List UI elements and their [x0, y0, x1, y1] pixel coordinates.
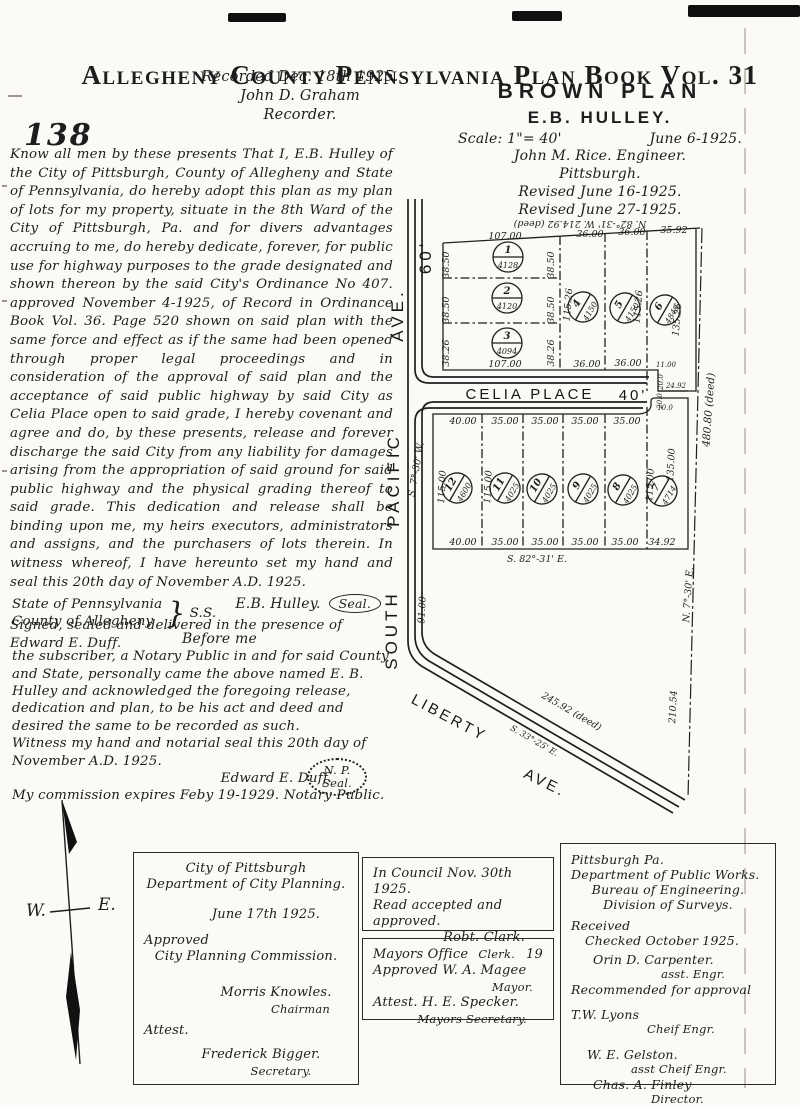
plan-owner: E.B. HULLEY.	[450, 108, 750, 128]
pw-line2: Department of Public Works.	[571, 867, 765, 882]
sixty-foot-label: 60'	[416, 240, 435, 274]
dim-lot1-left: 38.50	[441, 251, 452, 278]
pw-carpenter-title: asst. Engr.	[571, 967, 725, 982]
compass-rose: W. E.	[14, 792, 134, 1082]
notary-body: the subscriber, a Notary Public in and f…	[12, 648, 392, 735]
scan-smudge	[228, 13, 286, 22]
dim-lot11-rear: 35.00	[491, 537, 518, 548]
dim-lot9-rear: 35.00	[571, 537, 598, 548]
dim-lot6-front: 35.92	[660, 225, 687, 236]
lot-10-marker: 10 4025	[522, 469, 563, 510]
dim-lot2-left: 38.50	[441, 296, 452, 323]
plan-name: BROWN PLAN	[450, 80, 750, 104]
scan-smudge	[688, 5, 800, 17]
pw-line4: Division of Surveys.	[571, 897, 765, 912]
lot-9-marker: 9 4025	[563, 469, 604, 510]
bearing-liberty: S. 33°-25' E.	[508, 724, 559, 759]
pw-received: Received	[571, 918, 765, 933]
pacific-label: PACIFIC	[385, 433, 403, 527]
mayor-office-label: Mayors Office	[373, 947, 468, 963]
plan-city: Pittsburgh.	[450, 165, 750, 183]
notary-seal: N. P. Seal.	[307, 758, 367, 796]
notary-signature: Edward E. Duff.	[12, 770, 332, 787]
celia-south-curb1	[422, 402, 685, 800]
lot-area: 4094	[496, 347, 517, 356]
recorder-title: Recorder.	[185, 106, 415, 125]
mayor-secretary-title: Mayors Secretary.	[373, 1011, 527, 1027]
planning-commission: City Planning Commission.	[144, 949, 348, 965]
dim-deed-right: 480.80 (deed)	[700, 372, 717, 448]
lot-area: 4120	[496, 302, 517, 311]
dim-liberty-length: 245.92 (deed)	[539, 690, 604, 734]
pw-lyons: T.W. Lyons	[571, 1007, 765, 1022]
dim-jog-10: 10.0	[657, 404, 673, 412]
mayors-office-box: Mayors Office 19 Approved W. A. Magee Ma…	[362, 938, 554, 1020]
recorder-name: John D. Graham	[185, 87, 415, 106]
south-label: SOUTH	[385, 590, 401, 670]
dim-lot5-front: 36.00	[618, 227, 645, 238]
lot-number: 1	[505, 245, 512, 256]
planning-secretary-title: Secretary.	[214, 1063, 348, 1079]
planning-secretary-name: Frederick Bigger.	[174, 1047, 348, 1063]
pw-line3: Bureau of Engineering.	[571, 882, 765, 897]
plan-scale-line: Scale: 1"= 40' June 6-1925.	[450, 131, 750, 147]
dim-lot8-rear: 35.00	[611, 537, 638, 548]
dim-lot2-right: 38.50	[546, 296, 557, 323]
east-deed-line	[688, 228, 702, 798]
pw-lyons-title: Cheif Engr.	[647, 1022, 765, 1037]
celia-width-label: 40'	[619, 387, 648, 404]
planning-chairman-name: Morris Knowles.	[204, 985, 348, 1001]
brace-glyph: }	[166, 605, 185, 622]
dim-lot3-left: 38.26	[441, 339, 452, 366]
bearing-east-line: N. 7°-30' E.	[681, 567, 696, 624]
notary-seal-word: Seal.	[311, 777, 363, 790]
ss-label: S.S.	[190, 605, 217, 622]
dim-107-bottom: 107.00	[488, 359, 521, 370]
dim-lot9-front: 35.00	[571, 416, 598, 427]
dim-lot4-rear: 36.00	[573, 359, 600, 370]
dim-107-top: 107.00	[488, 231, 521, 242]
mayor-office-year: 19	[526, 947, 543, 963]
lot-area: 4128	[497, 261, 518, 270]
dim-lot8-front: 35.00	[613, 416, 640, 427]
dim-lot5-rear: 36.00	[614, 358, 641, 369]
dim-11: 11.00	[656, 361, 677, 369]
dim-jog-20a: 20.0	[657, 374, 665, 391]
lot-8-marker: 8 4025	[603, 470, 644, 511]
pw-gelston: W. E. Gelston.	[587, 1047, 765, 1062]
dim-lot10-rear: 35.00	[531, 537, 558, 548]
planning-attest: Attest.	[144, 1023, 348, 1039]
bearing-south-line: S. 82°-31' E.	[507, 554, 567, 565]
planning-approved: Approved	[144, 933, 348, 949]
venue-state: State of Pennsylvania	[12, 596, 162, 613]
bearing-south-pacific: S. 7°-30' W.	[406, 441, 426, 497]
pw-carpenter: Orin D. Carpenter.	[593, 952, 765, 967]
notary-block: State of Pennsylvania County of Alleghen…	[12, 596, 392, 805]
pw-gelston-title: asst Cheif Engr.	[631, 1062, 765, 1077]
recorded-date: Recorded Dec. 18th 1925.	[185, 68, 415, 87]
dim-lot11-front: 35.00	[491, 416, 518, 427]
scan-smudge	[512, 11, 562, 21]
plat-map: N. 82°-31' W. 214.92 (deed) 107.00 107.0…	[385, 195, 800, 840]
dim-lot10-front: 35.00	[531, 416, 558, 427]
council-line2: Read accepted and approved.	[373, 898, 543, 930]
planning-chairman-title: Chairman	[144, 1001, 330, 1017]
scan-mark	[8, 95, 22, 97]
mayor-title: Mayor.	[373, 979, 533, 995]
council-line1: In Council Nov. 30th 1925.	[373, 866, 543, 898]
ave-label-left: AVE.	[388, 288, 407, 341]
scan-mark	[2, 185, 7, 187]
celia-place-label: CELIA PLACE	[466, 386, 595, 403]
scan-mark	[2, 470, 7, 472]
lot-number: 3	[504, 331, 511, 342]
dim-lot7-rear: 34.92	[648, 537, 675, 548]
council-box: In Council Nov. 30th 1925. Read accepted…	[362, 857, 554, 931]
venue-clause: State of Pennsylvania County of Alleghen…	[12, 596, 392, 631]
plan-scale: Scale: 1"= 40'	[458, 131, 562, 147]
planning-date: June 17th 1925.	[184, 907, 348, 923]
planning-line2: Department of City Planning.	[144, 877, 348, 893]
public-works-box: Pittsburgh Pa. Department of Public Work…	[560, 843, 776, 1085]
plan-date: June 6-1925.	[650, 131, 743, 147]
compass-west-label: W.	[26, 901, 46, 921]
lot-number: 2	[503, 286, 511, 297]
dim-lot4-front: 36.00	[576, 229, 603, 240]
lot-2-marker: 2 4120	[492, 283, 522, 313]
mayor-attest: Attest. H. E. Specker.	[373, 995, 543, 1011]
dedication-block: Know all men by these presents That I, E…	[10, 146, 393, 653]
lot-1-marker: 1 4128	[493, 242, 523, 272]
city-planning-box: City of Pittsburgh Department of City Pl…	[133, 852, 359, 1085]
scan-mark	[2, 300, 7, 302]
dim-lot1-right: 38.50	[546, 251, 557, 278]
dim-91: 91.00	[416, 596, 428, 624]
pw-finley-title: Director.	[651, 1092, 765, 1107]
pw-line1: Pittsburgh Pa.	[571, 852, 765, 867]
ave-label-liberty: AVE.	[521, 765, 569, 800]
mayor-approved: Approved W. A. Magee	[373, 963, 543, 979]
pw-recommend: Recommended for approval	[571, 982, 765, 997]
dim-lot12-rear: 40.00	[448, 537, 476, 548]
mayor-office-row: Mayors Office 19	[373, 947, 543, 963]
pw-checked: Checked October 1925.	[585, 933, 765, 948]
dim-jog-2492: 24.92	[665, 382, 687, 390]
before-me: Before me	[182, 631, 392, 648]
venue-county: County of Allegheny	[12, 613, 162, 630]
dedication-text: Know all men by these presents That I, E…	[10, 146, 393, 592]
lot-3-marker: 3 4094	[492, 328, 522, 358]
plan-engineer: John M. Rice. Engineer.	[450, 147, 750, 165]
recorded-block: Recorded Dec. 18th 1925. John D. Graham …	[185, 68, 415, 125]
dim-210: 210.54	[667, 690, 680, 725]
dim-lot12-front: 40.00	[448, 416, 476, 427]
compass-south-spindle	[66, 952, 80, 1060]
dim-lot3-right: 38.26	[546, 339, 557, 366]
planning-line1: City of Pittsburgh	[144, 861, 348, 877]
compass-east-label: E.	[97, 895, 116, 915]
plan-book-page: { "page": { "number": "138" }, "header":…	[0, 0, 800, 1090]
